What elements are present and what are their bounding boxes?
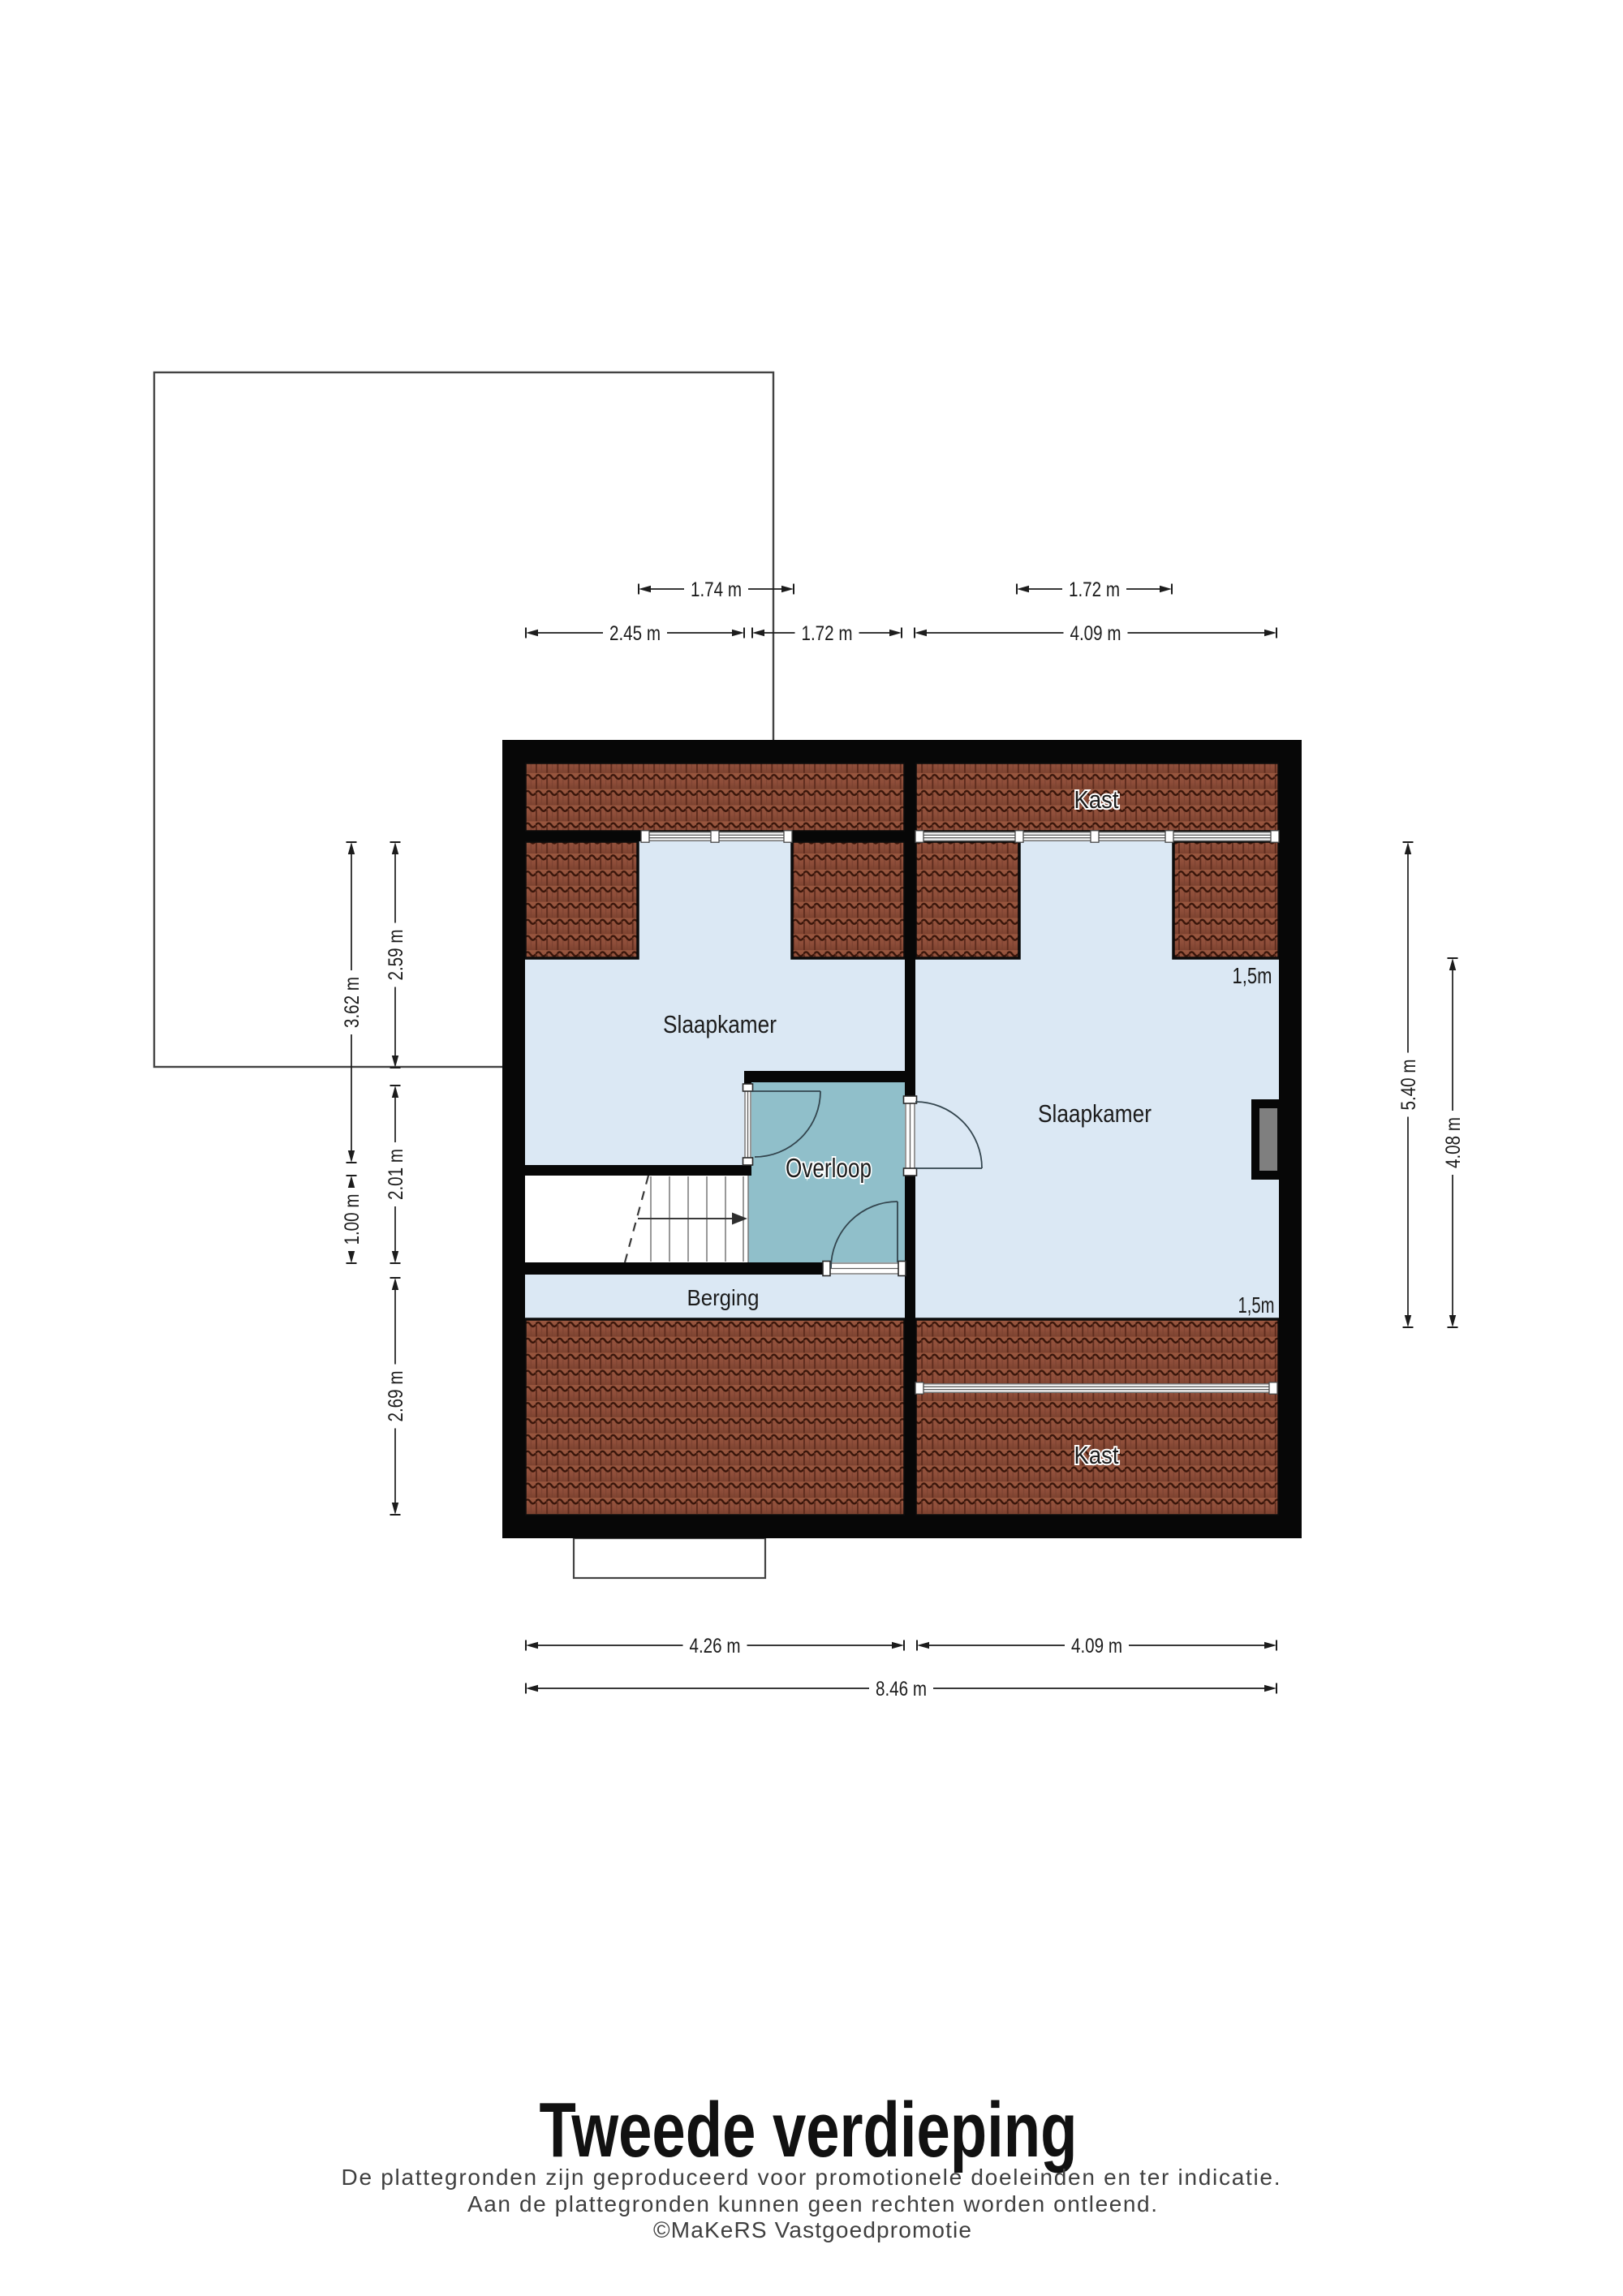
svg-text:2.45 m: 2.45 m <box>609 622 661 645</box>
svg-text:1.72 m: 1.72 m <box>802 622 853 645</box>
svg-text:1.74 m: 1.74 m <box>691 578 742 601</box>
svg-text:4.26 m: 4.26 m <box>690 1635 741 1658</box>
svg-text:De plattegronden zijn geproduc: De plattegronden zijn geproduceerd voor … <box>342 2165 1281 2190</box>
svg-text:Slaapkamer: Slaapkamer <box>663 1010 777 1038</box>
svg-text:Kast: Kast <box>1074 785 1119 814</box>
svg-text:Kast: Kast <box>1074 1441 1119 1469</box>
svg-text:Slaapkamer: Slaapkamer <box>1038 1099 1152 1128</box>
svg-text:5.40 m: 5.40 m <box>1397 1060 1420 1111</box>
svg-text:1,5m: 1,5m <box>1238 1292 1275 1318</box>
svg-text:2.59 m: 2.59 m <box>385 930 407 981</box>
svg-text:8.46 m: 8.46 m <box>876 1678 927 1701</box>
svg-text:©MaKeRS Vastgoedpromotie: ©MaKeRS Vastgoedpromotie <box>653 2217 971 2242</box>
svg-text:2.01 m: 2.01 m <box>385 1149 407 1200</box>
svg-text:1.00 m: 1.00 m <box>341 1194 364 1245</box>
svg-text:2.69 m: 2.69 m <box>385 1371 407 1422</box>
svg-text:4.09 m: 4.09 m <box>1070 622 1121 645</box>
svg-text:4.08 m: 4.08 m <box>1442 1117 1465 1168</box>
svg-text:1,5m: 1,5m <box>1233 963 1272 988</box>
svg-text:Overloop: Overloop <box>786 1153 872 1183</box>
svg-text:1.72 m: 1.72 m <box>1069 578 1120 601</box>
svg-text:Berging: Berging <box>687 1285 760 1310</box>
svg-text:4.09 m: 4.09 m <box>1071 1635 1122 1658</box>
svg-text:Aan de plattegronden kunnen ge: Aan de plattegronden kunnen geen rechten… <box>467 2191 1157 2216</box>
svg-text:3.62 m: 3.62 m <box>341 977 364 1028</box>
svg-text:Tweede verdieping: Tweede verdieping <box>540 2087 1078 2173</box>
